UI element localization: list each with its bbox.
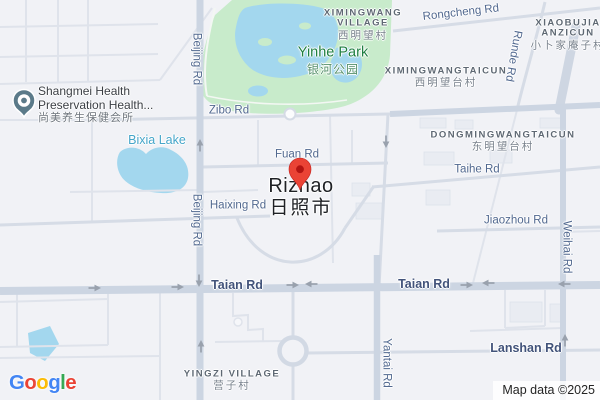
park-name-zh: 银河公园 bbox=[298, 63, 368, 76]
village-label-dongmingwangtaicun: DONGMINGWANGTAICUN 东明望台村 bbox=[430, 131, 575, 154]
village-zh: 西明望村 bbox=[324, 30, 402, 42]
road-label-haixing: Haixing Rd bbox=[210, 200, 266, 213]
google-logo-letter: o bbox=[36, 371, 48, 394]
road-label-beijing-top: Beijing Rd bbox=[190, 33, 203, 85]
village-label-xiaobujia: XIAOBUJIA ANZICUN 小卜家庵子村 bbox=[531, 18, 600, 51]
road-label-lanshan: Lanshan Rd bbox=[490, 342, 562, 356]
city-label-zh: 日照市 bbox=[269, 199, 332, 220]
village-label-ximingwangtaicun: XIMINGWANGTAICUN 西明望台村 bbox=[385, 67, 508, 90]
road-label-beijing: Beijing Rd bbox=[190, 194, 203, 246]
village-label-ximingwang: XIMINGWANG VILLAGE 西明望村 bbox=[324, 8, 402, 41]
map-canvas[interactable]: Beijing Rd Beijing Rd Zibo Rd Fuan Rd Ha… bbox=[0, 0, 600, 400]
road-label-taian-west: Taian Rd bbox=[211, 279, 263, 293]
village-line: ANZICUN bbox=[531, 29, 600, 39]
google-logo-letter: G bbox=[9, 371, 24, 394]
village-line: YINGZI VILLAGE bbox=[184, 370, 280, 380]
village-line: VILLAGE bbox=[324, 19, 402, 29]
road-label-zibo: Zibo Rd bbox=[209, 105, 249, 118]
village-zh: 小卜家庵子村 bbox=[531, 40, 600, 52]
village-zh: 东明望台村 bbox=[430, 142, 575, 154]
google-logo-letter: e bbox=[65, 371, 76, 394]
village-zh: 西明望台村 bbox=[385, 78, 508, 90]
map-attribution: Map data ©2025 bbox=[493, 381, 600, 400]
road-label-taihe: Taihe Rd bbox=[454, 164, 499, 177]
google-logo-letter: o bbox=[24, 371, 36, 394]
google-logo-letter: g bbox=[48, 371, 60, 394]
poi-name-zh: 尚美养生保健会所 bbox=[38, 112, 153, 126]
village-line: DONGMINGWANGTAICUN bbox=[430, 131, 575, 141]
village-label-yingzi: YINGZI VILLAGE 营子村 bbox=[184, 370, 280, 393]
poi-name-line2: Preservation Health... bbox=[38, 99, 153, 113]
poi-label-shangmei: Shangmei Health Preservation Health... 尚… bbox=[38, 85, 153, 126]
poi-name-line1: Shangmei Health bbox=[38, 85, 153, 99]
village-zh: 营子村 bbox=[184, 381, 280, 393]
park-name: Yinhe Park bbox=[298, 45, 368, 61]
road-label-jiaozhou: Jiaozhou Rd bbox=[484, 215, 548, 228]
road-label-yantai: Yantai Rd bbox=[380, 338, 393, 388]
road-label-weihai: Weihai Rd bbox=[560, 221, 573, 274]
park-label-yinhe: Yinhe Park 银河公园 bbox=[298, 45, 368, 76]
roundabouts bbox=[234, 109, 307, 365]
water-label-bixia-lake: Bixia Lake bbox=[128, 134, 186, 148]
road-label-taian-east: Taian Rd bbox=[398, 278, 450, 292]
village-line: XIMINGWANGTAICUN bbox=[385, 67, 508, 77]
road-label-fuan: Fuan Rd bbox=[275, 149, 319, 162]
city-label: Rizhao bbox=[268, 175, 333, 197]
google-logo[interactable]: Google bbox=[9, 371, 76, 395]
